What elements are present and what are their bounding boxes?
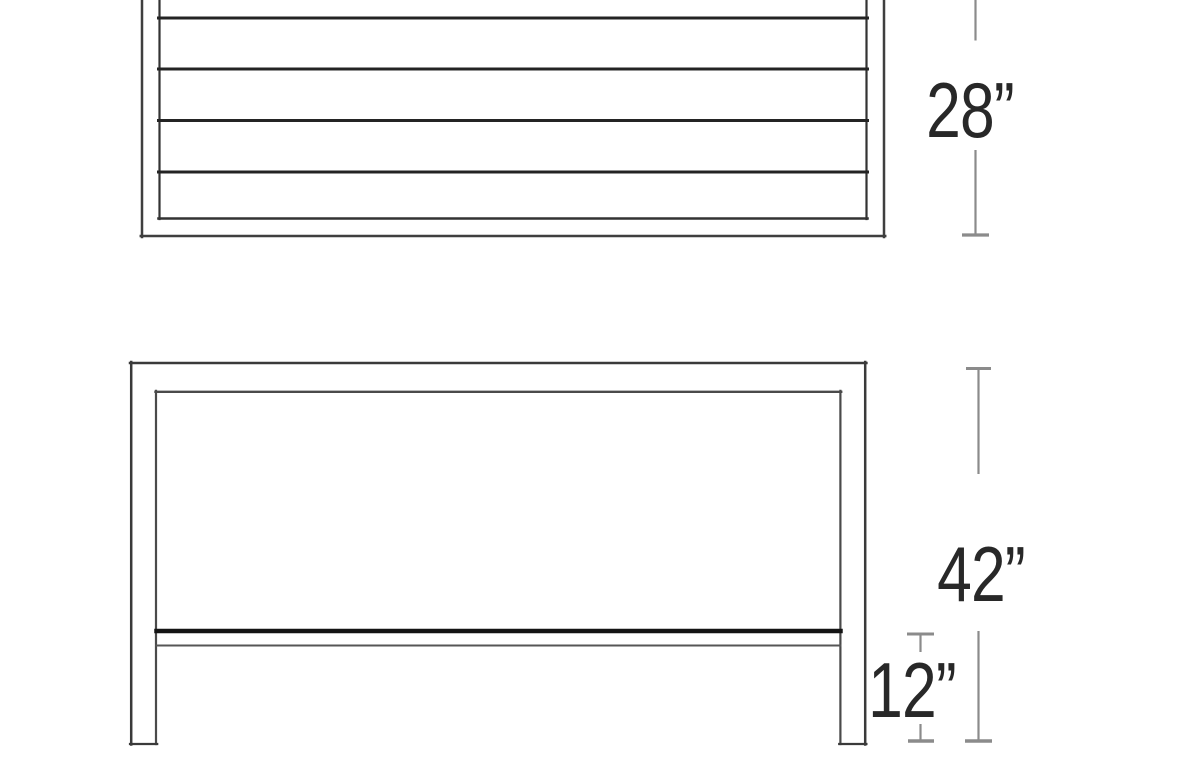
dimension-label-28: 28”: [926, 71, 1014, 149]
diagram-linework: [0, 0, 1200, 770]
plan-view-drawing: [141, 0, 885, 237]
dimension-label-12: 12”: [868, 651, 956, 729]
dimension-label-42: 42”: [937, 535, 1025, 613]
furniture-dimension-diagram: 28” 42” 12”: [0, 0, 1200, 770]
elevation-view-drawing: [130, 362, 866, 745]
